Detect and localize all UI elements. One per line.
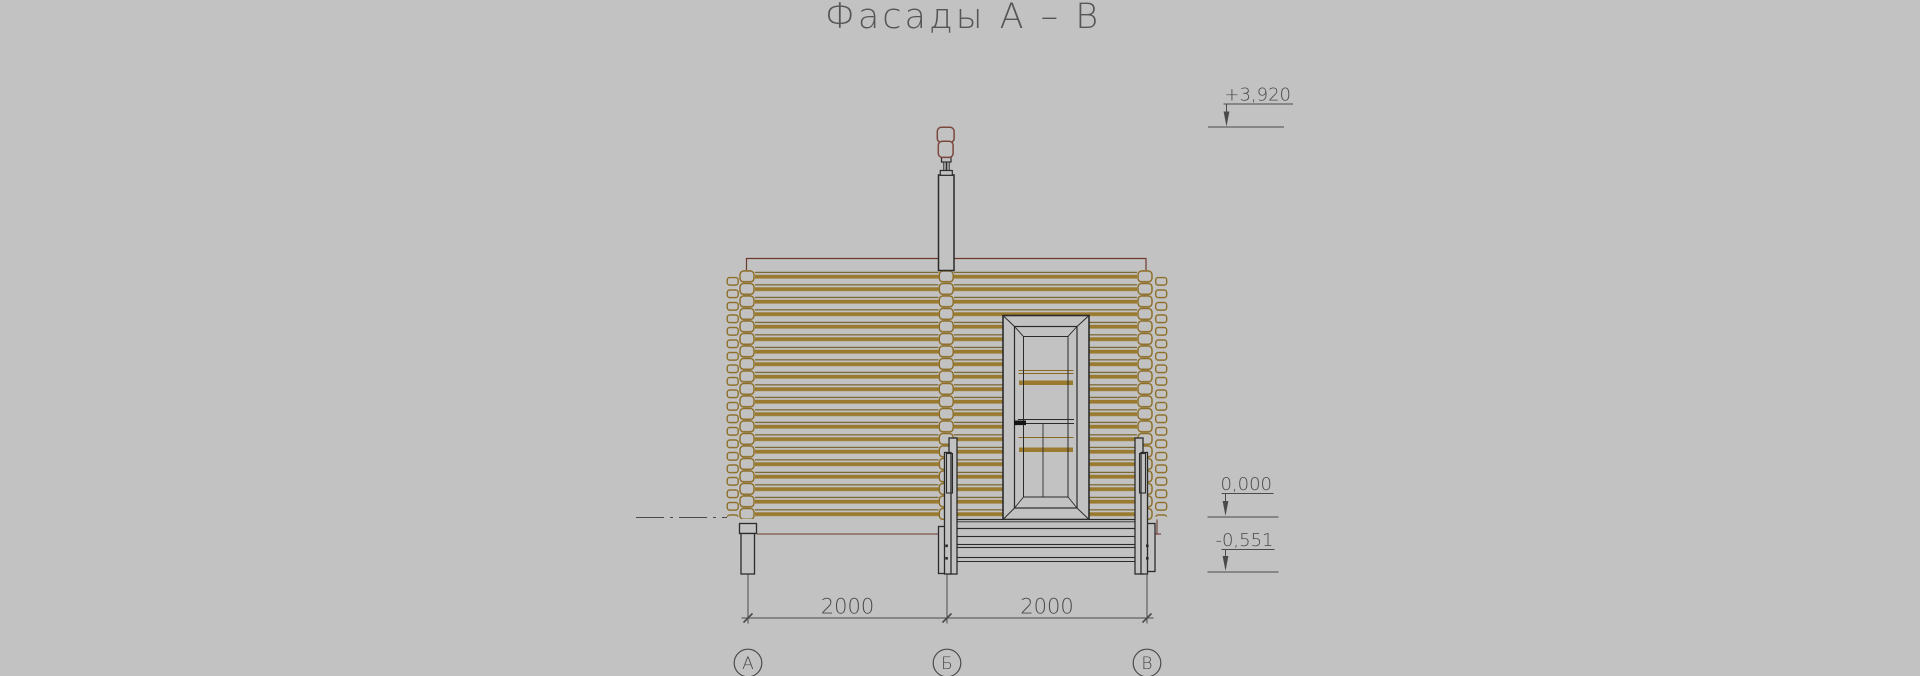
log-ends-left-outer bbox=[727, 277, 740, 517]
elevation-value-chimney-top: +3,920 bbox=[1224, 85, 1291, 106]
elevation-value-ground: -0,551 bbox=[1215, 530, 1273, 551]
drawing-title: Фасады А – В bbox=[825, 0, 1101, 37]
porch-post-left-front bbox=[945, 453, 952, 575]
chimney bbox=[937, 127, 954, 270]
chimney-cap-bottom bbox=[938, 141, 953, 157]
facade-drawing: Фасады А – В bbox=[0, 0, 1920, 676]
dimension-value-bv: 2000 bbox=[1020, 595, 1073, 619]
deck-step-1 bbox=[956, 537, 1137, 545]
porch-deck bbox=[951, 520, 1141, 562]
elevation-value-floor: 0,000 bbox=[1220, 474, 1272, 495]
deck-platform-band bbox=[951, 520, 1141, 529]
deck-step-2 bbox=[956, 548, 1137, 558]
dimension-value-ab: 2000 bbox=[821, 595, 874, 619]
drawing-canvas: Фасады А – В bbox=[0, 0, 1920, 676]
log-ends-axis-a bbox=[739, 270, 755, 519]
foundation-post-a bbox=[741, 534, 755, 575]
door-handle bbox=[1014, 421, 1026, 426]
log-ends-right-outer bbox=[1155, 277, 1168, 517]
axis-label-b: Б bbox=[941, 654, 953, 674]
chimney-cap-top bbox=[937, 127, 954, 142]
axis-label-a: А bbox=[742, 654, 754, 674]
chimney-pipe bbox=[939, 175, 955, 271]
entry-door bbox=[1003, 316, 1089, 520]
axis-label-v: В bbox=[1141, 654, 1152, 674]
porch-post-right-front bbox=[1141, 453, 1148, 575]
